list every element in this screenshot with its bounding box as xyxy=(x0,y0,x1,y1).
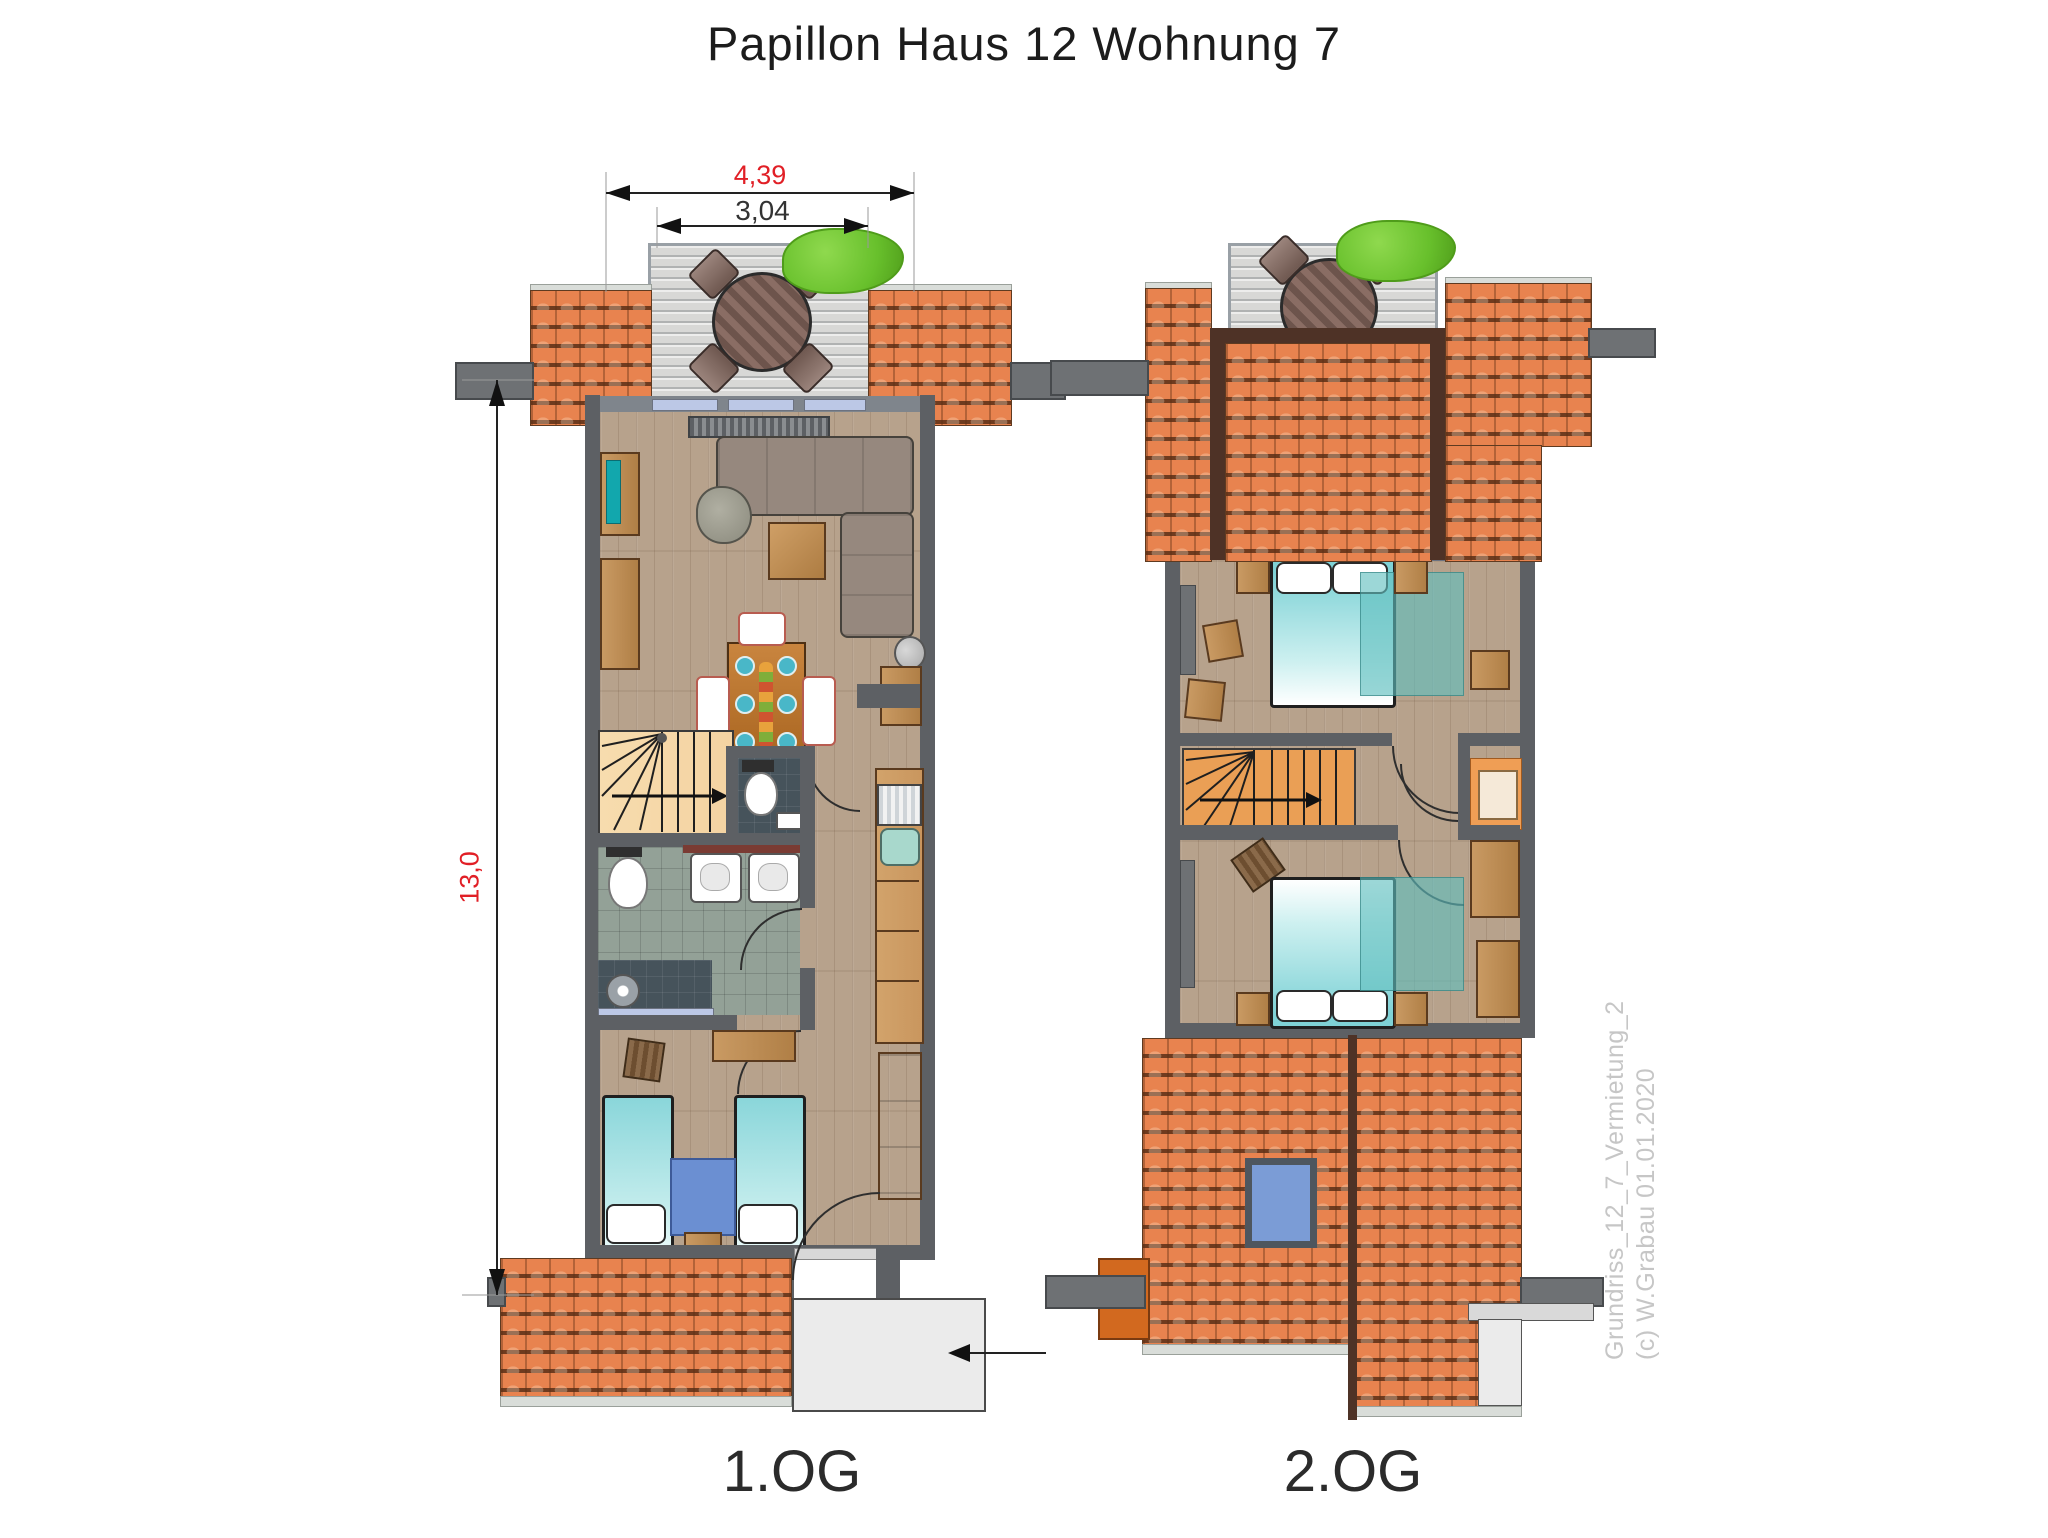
floor-label-2og: 2.OG xyxy=(1243,1438,1463,1505)
dim-height-total: 13,0 xyxy=(455,836,486,920)
floor-label-1og: 1.OG xyxy=(682,1438,902,1505)
watermark-line1: Grundriss_12_7_Vermietung_2 xyxy=(1600,840,1631,1360)
dim-width-outer: 4,39 xyxy=(700,160,820,191)
dimension-lines xyxy=(0,0,2048,1538)
dim-width-inner: 3,04 xyxy=(700,195,825,227)
floorplan-page: Papillon Haus 12 Wohnung 7 xyxy=(0,0,2048,1538)
watermark: Grundriss_12_7_Vermietung_2 (c) W.Grabau… xyxy=(1600,840,1662,1360)
watermark-line2: (c) W.Grabau 01.01.2020 xyxy=(1631,840,1662,1360)
